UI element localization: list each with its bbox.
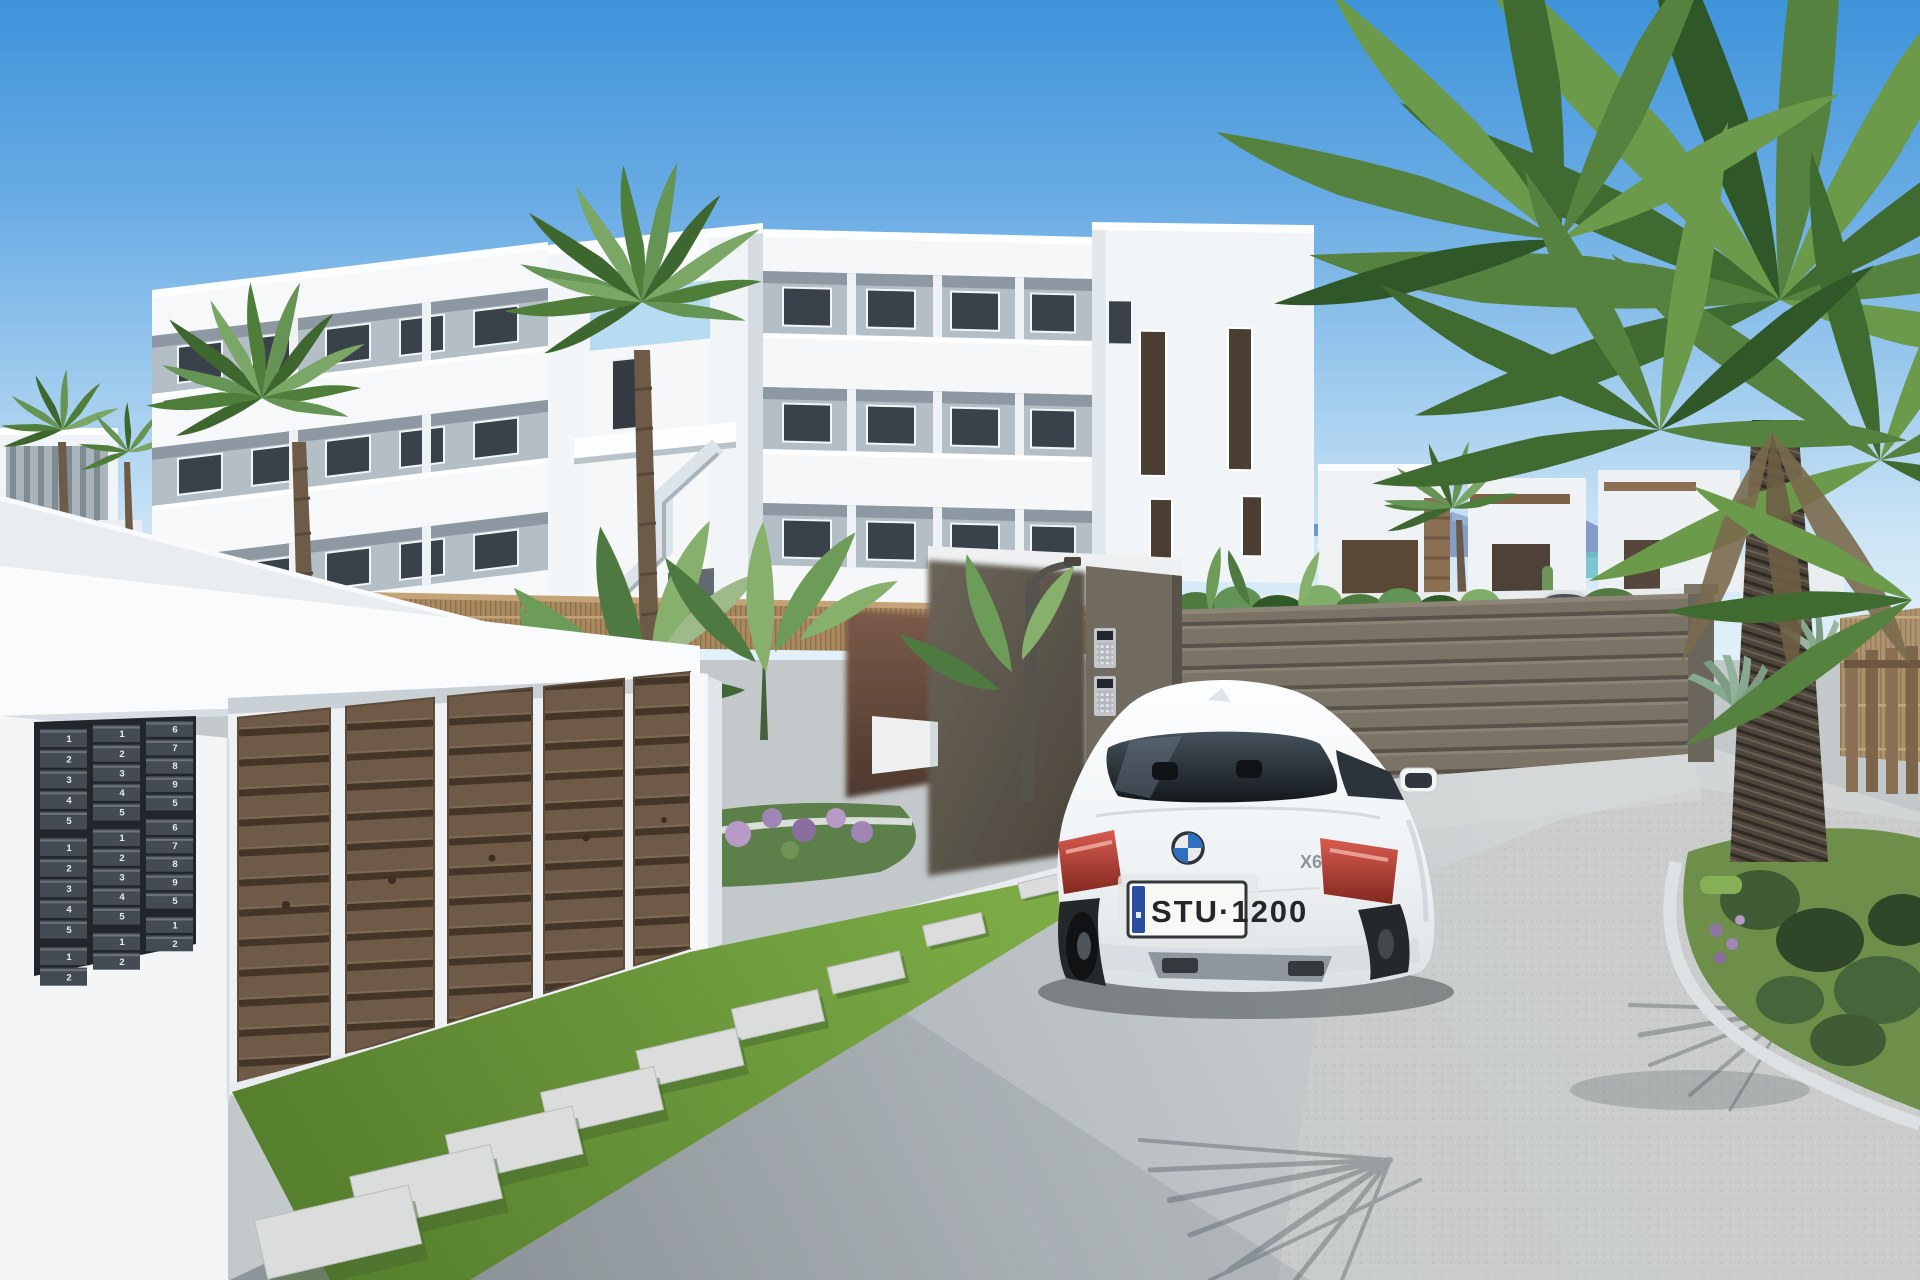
- mailbox-number: 6: [172, 724, 177, 735]
- mailbox-slot-flap: [93, 746, 140, 748]
- mailbox-slot-flap: [40, 731, 87, 733]
- mailbox-slot-flap: [146, 796, 193, 798]
- mailbox-slot-flap: [40, 901, 87, 903]
- balcony-band: [763, 271, 1092, 346]
- mailbox-slot-flap: [93, 850, 140, 852]
- mailbox-number: 9: [172, 780, 177, 791]
- mailbox-slot-flap: [40, 860, 87, 862]
- mailbox-slot-flap: [146, 857, 193, 859]
- mailbox-number: 2: [119, 957, 124, 968]
- mailbox-number: 3: [119, 872, 124, 883]
- mailbox-number: 5: [119, 912, 125, 923]
- intercom-keypad: [1094, 676, 1116, 716]
- mailbox-slot-flap: [40, 969, 87, 971]
- mailbox-number: 1: [119, 937, 125, 948]
- mailbox-number: 4: [66, 796, 72, 807]
- garage-door: [238, 708, 330, 1087]
- mailbox-number: 2: [119, 749, 124, 760]
- mailbox-slot-flap: [146, 876, 193, 878]
- mailbox-slot-flap: [146, 919, 193, 921]
- mailbox-number: 1: [172, 920, 178, 931]
- building-end-block: [1092, 222, 1314, 583]
- mailbox-number: 8: [172, 761, 177, 772]
- lamp-head: [1064, 557, 1081, 566]
- garage-door: [346, 698, 434, 1054]
- mailbox-slot-flap: [146, 741, 193, 743]
- mailbox-number: 5: [172, 896, 178, 907]
- bmw-roundel-icon: [1173, 833, 1203, 863]
- mailbox-slot-flap: [93, 954, 140, 956]
- mailbox-slot-flap: [146, 778, 193, 780]
- architectural-render: 123451234512123451234512678956789512: [0, 0, 1920, 1280]
- mailbox-number: 5: [119, 808, 125, 819]
- mailbox-slot-flap: [93, 785, 140, 787]
- mailbox-slot-flap: [40, 792, 87, 794]
- plate-number: STU·1200: [1151, 894, 1308, 929]
- mailbox-number: 4: [119, 788, 125, 799]
- mailbox-number: 1: [66, 843, 72, 854]
- plate-eu-strip: [1132, 886, 1145, 933]
- mailbox-number: 1: [66, 734, 72, 745]
- mailbox-slot-flap: [40, 751, 87, 753]
- mailbox-slot-flap: [40, 922, 87, 924]
- mailbox-slot-flap: [93, 870, 140, 872]
- mailbox-number: 7: [172, 743, 177, 754]
- mailbox-number: 8: [172, 859, 177, 870]
- mailbox-slot-flap: [40, 772, 87, 774]
- mailbox-number: 2: [66, 972, 71, 983]
- mailbox-number: 1: [119, 729, 125, 740]
- mailbox-number: 3: [66, 884, 71, 895]
- mailbox-slot-flap: [146, 723, 193, 725]
- mailbox-number: 5: [172, 798, 178, 809]
- mailbox-number: 6: [172, 822, 177, 833]
- mailbox-slot-flap: [40, 881, 87, 883]
- mailbox-slot-flap: [93, 889, 140, 891]
- mailbox-slot-flap: [93, 805, 140, 807]
- mailbox-number: 3: [119, 768, 124, 779]
- mailbox-slot-flap: [146, 894, 193, 896]
- mailbox-number: 5: [66, 925, 72, 936]
- mailbox-number: 2: [172, 939, 177, 950]
- garage-corner: [690, 672, 708, 950]
- mailbox-number: 3: [66, 775, 71, 786]
- exhaust-tip: [1162, 958, 1198, 973]
- intercom-keypad: [1094, 628, 1116, 668]
- mailbox-slot-flap: [93, 935, 140, 937]
- mailbox-number: 2: [119, 853, 124, 864]
- mailbox-number: 2: [66, 863, 71, 874]
- mailbox-slot-flap: [40, 949, 87, 951]
- mailbox-slot-flap: [93, 831, 140, 833]
- mailbox-slot-flap: [146, 759, 193, 761]
- mailbox-number: 1: [66, 952, 72, 963]
- mailbox-unit: 123451234512123451234512678956789512: [34, 716, 196, 986]
- mailbox-number: 4: [119, 892, 125, 903]
- mailbox-slot-flap: [40, 813, 87, 815]
- mailbox-number: 9: [172, 878, 177, 889]
- model-badge: X6: [1300, 852, 1322, 872]
- mailbox-slot-flap: [93, 727, 140, 729]
- mailbox-slot-flap: [93, 909, 140, 911]
- balcony-band: [763, 387, 1092, 462]
- mailbox-number: 4: [66, 905, 72, 916]
- exhaust-tip: [1288, 961, 1324, 976]
- mailbox-number: 7: [172, 841, 177, 852]
- mailbox-slot-flap: [93, 766, 140, 768]
- mailbox-slot-flap: [146, 821, 193, 823]
- mailbox-number: 2: [66, 754, 71, 765]
- mailbox-slot-flap: [40, 840, 87, 842]
- mailbox-slot-flap: [146, 937, 193, 939]
- mailbox-number: 1: [119, 833, 125, 844]
- mailbox-slot-flap: [146, 839, 193, 841]
- white-planter: [872, 716, 938, 774]
- mailbox-number: 5: [66, 816, 72, 827]
